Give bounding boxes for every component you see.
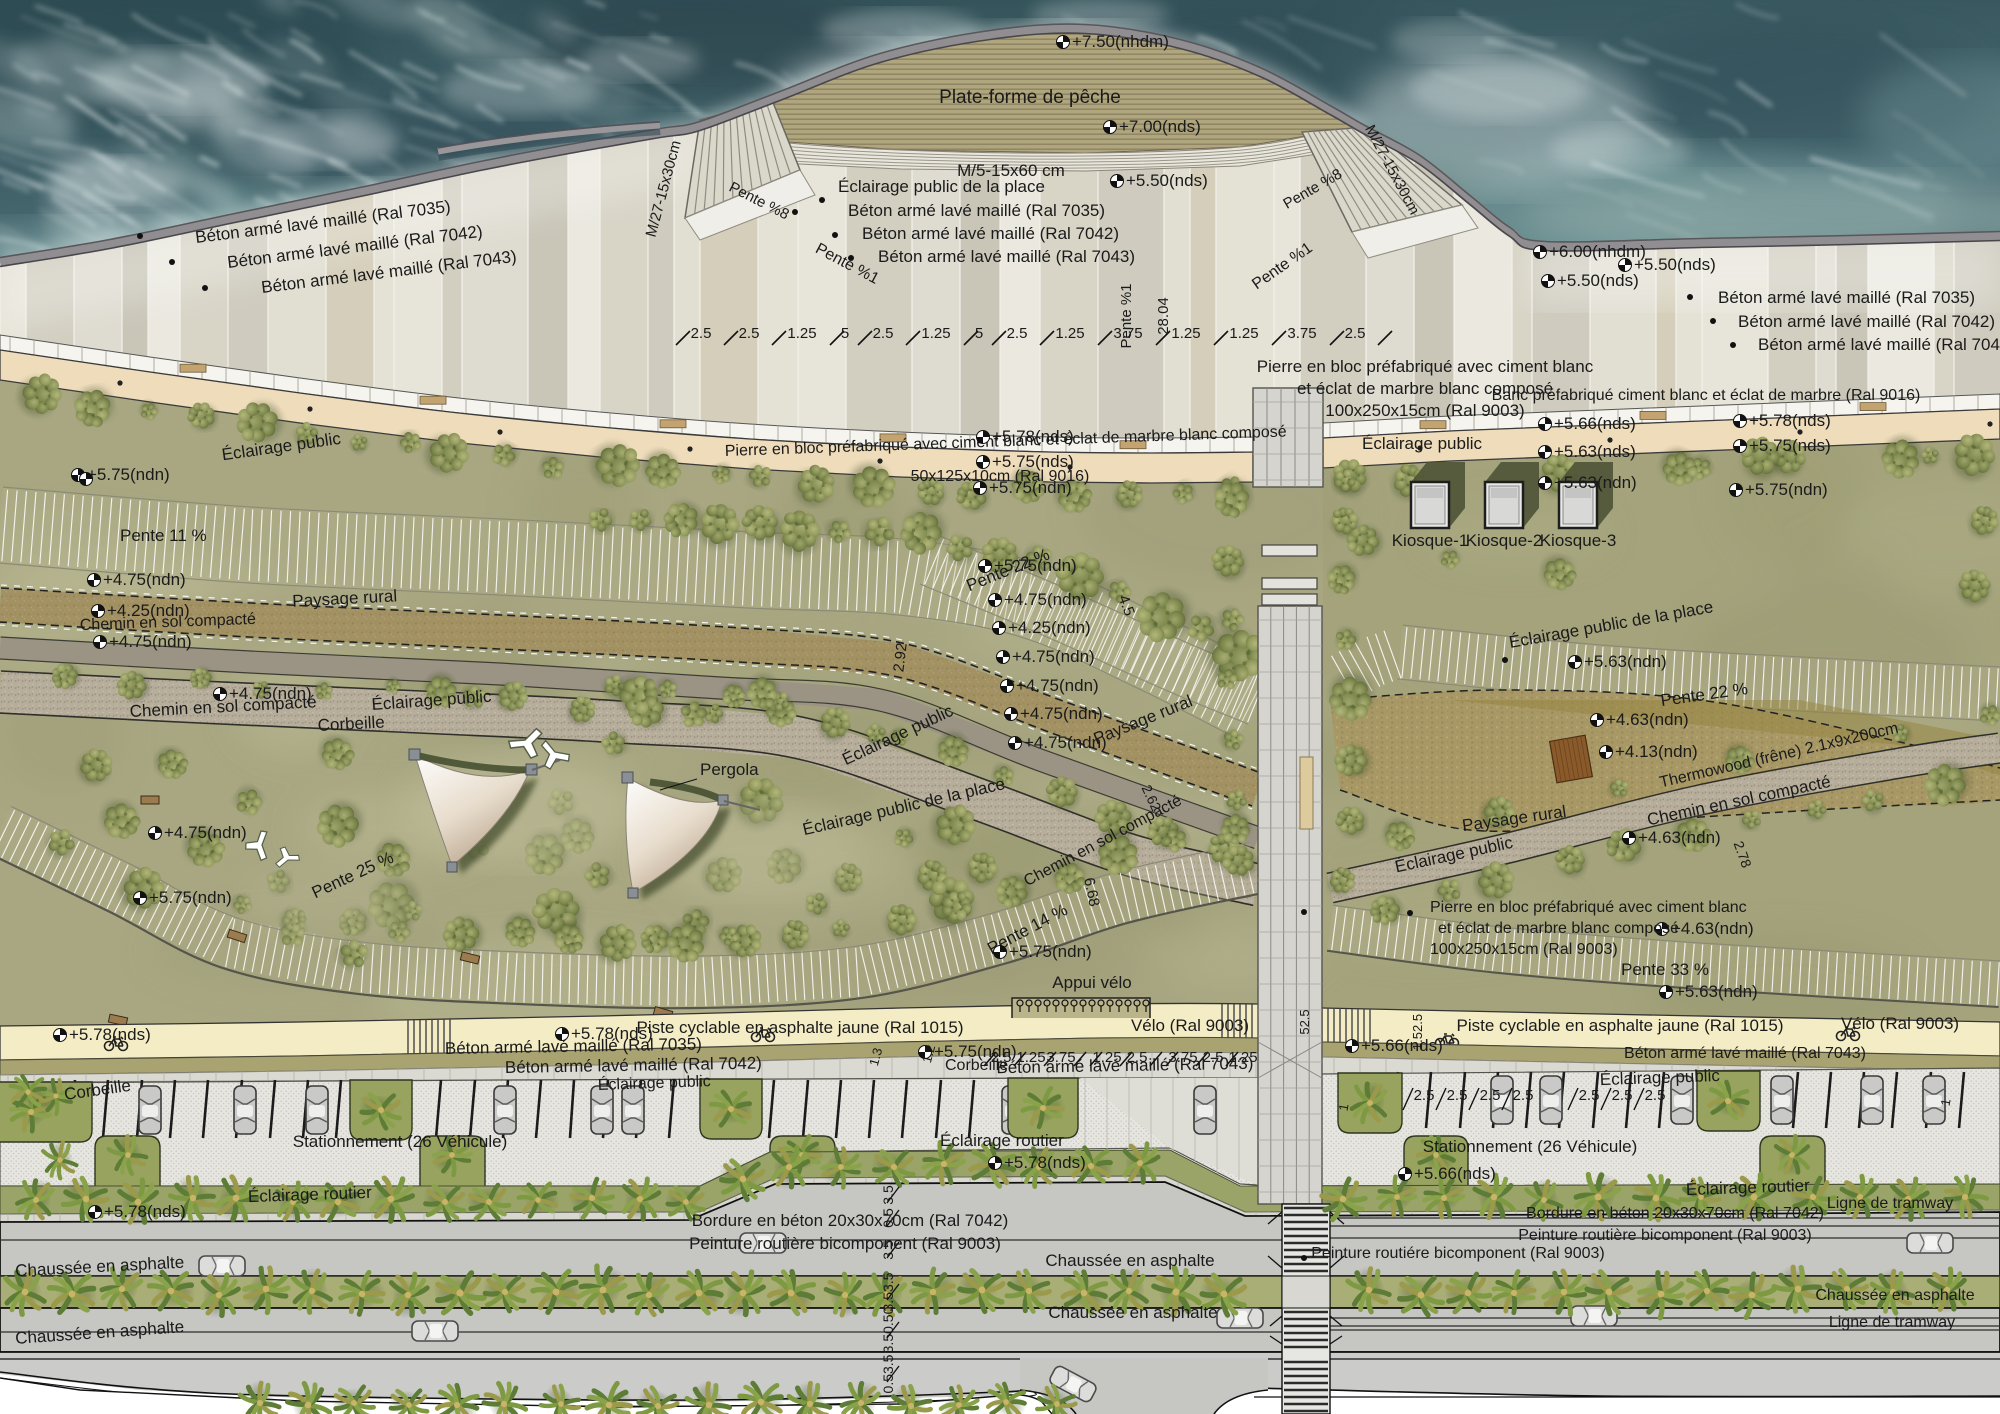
svg-text:Banc préfabriqué ciment blanc: Banc préfabriqué ciment blanc et éclat d… (1492, 387, 1921, 404)
svg-text:2.5: 2.5 (873, 325, 894, 342)
svg-text:1.25: 1.25 (1055, 325, 1084, 342)
svg-text:Éclairage routier: Éclairage routier (940, 1131, 1064, 1150)
svg-text:Peinture routière bicomponent: Peinture routière bicomponent (Ral 9003) (689, 1234, 1001, 1253)
svg-text:Vélo (Ral 9003): Vélo (Ral 9003) (1841, 1014, 1959, 1033)
svg-text:+5.75(nds): +5.75(nds) (992, 452, 1074, 471)
svg-text:52.5: 52.5 (1297, 1009, 1312, 1034)
svg-text:+7.00(nds): +7.00(nds) (1119, 117, 1201, 136)
svg-text:Pente 33 %: Pente 33 % (1621, 960, 1709, 979)
svg-text:+4.13(ndn): +4.13(ndn) (1615, 742, 1698, 761)
svg-text:1.25: 1.25 (787, 325, 816, 342)
svg-text:2.5: 2.5 (1480, 1087, 1501, 1104)
svg-text:Chaussée en asphalte: Chaussée en asphalte (1815, 1287, 1974, 1304)
svg-text:Pente %1: Pente %1 (1118, 283, 1135, 348)
svg-text:Chaussée en asphalte: Chaussée en asphalte (1045, 1251, 1214, 1270)
svg-text:Éclairage public de la place: Éclairage public de la place (838, 177, 1045, 196)
svg-text:Pergola: Pergola (700, 760, 759, 779)
svg-text:2.5: 2.5 (1447, 1087, 1468, 1104)
svg-text:Béton armé lavé maillé (Ral 70: Béton armé lavé maillé (Ral 7043) (1758, 335, 2000, 354)
svg-text:+4.75(ndn): +4.75(ndn) (1012, 647, 1095, 666)
svg-text:Corbeille: Corbeille (317, 713, 385, 735)
svg-text:Pierre en bloc préfabriqué ave: Pierre en bloc préfabriqué avec ciment b… (1257, 357, 1594, 376)
svg-text:+5.75(ndn): +5.75(ndn) (1009, 942, 1092, 961)
svg-text:Pierre en bloc préfabriqué ave: Pierre en bloc préfabriqué avec ciment b… (1430, 899, 1747, 916)
svg-text:1.25: 1.25 (1171, 325, 1200, 342)
svg-text:+5.63(ndn): +5.63(ndn) (1584, 652, 1667, 671)
svg-text:+5.75(ndn): +5.75(ndn) (149, 888, 232, 907)
svg-text:+5.78(nds): +5.78(nds) (1004, 1153, 1086, 1172)
svg-text:5: 5 (975, 325, 983, 342)
svg-text:+5.75(ndn): +5.75(ndn) (87, 465, 170, 484)
svg-text:5: 5 (841, 325, 849, 342)
svg-text:Plate-forme de pêche: Plate-forme de pêche (939, 87, 1121, 108)
svg-text:+4.75(ndn): +4.75(ndn) (1004, 590, 1087, 609)
svg-text:28.04: 28.04 (1155, 297, 1172, 335)
svg-text:+5.50(nds): +5.50(nds) (1634, 255, 1716, 274)
svg-text:100x250x15cm (Ral 9003): 100x250x15cm (Ral 9003) (1430, 941, 1618, 958)
svg-text:2.92: 2.92 (890, 642, 910, 673)
svg-text:Kiosque-3: Kiosque-3 (1540, 531, 1617, 550)
svg-text:+5.63(ndn): +5.63(ndn) (1675, 982, 1758, 1001)
svg-text:1.25: 1.25 (1229, 325, 1258, 342)
svg-text:+4.75(ndn): +4.75(ndn) (103, 570, 186, 589)
svg-text:Kiosque-2: Kiosque-2 (1466, 531, 1543, 550)
svg-text:+5.75(nds): +5.75(nds) (1749, 436, 1831, 455)
svg-text:1.25: 1.25 (921, 325, 950, 342)
svg-text:+4.63(ndn): +4.63(ndn) (1671, 919, 1754, 938)
svg-text:+5.78(nds): +5.78(nds) (104, 1202, 186, 1221)
svg-text:2.5: 2.5 (691, 325, 712, 342)
svg-text:Vélo (Ral 9003): Vélo (Ral 9003) (1131, 1016, 1249, 1035)
svg-text:Béton armé lavé maillé (Ral 70: Béton armé lavé maillé (Ral 7042) (1738, 312, 1995, 331)
svg-text:+5.66(nds): +5.66(nds) (1554, 414, 1636, 433)
svg-text:+5.78(nds): +5.78(nds) (1749, 411, 1831, 430)
svg-text:+5.75(ndn): +5.75(ndn) (989, 478, 1072, 497)
svg-text:+4.75(ndn): +4.75(ndn) (1016, 676, 1099, 695)
svg-text:+5.50(nds): +5.50(nds) (1557, 271, 1639, 290)
svg-text:2.5: 2.5 (1007, 325, 1028, 342)
svg-text:Appui vélo: Appui vélo (1052, 973, 1131, 992)
svg-text:+5.78(nds): +5.78(nds) (992, 427, 1074, 446)
svg-text:+4.63(ndn): +4.63(ndn) (1638, 828, 1721, 847)
svg-text:+4.75(ndn): +4.75(ndn) (164, 823, 247, 842)
svg-text:Béton armé lavé maillé (Ral 70: Béton armé lavé maillé (Ral 7035) (848, 201, 1105, 220)
svg-text:Béton armé lavé maillé (Ral 70: Béton armé lavé maillé (Ral 7035) (1718, 288, 1975, 307)
svg-text:+5.78(nds): +5.78(nds) (69, 1025, 151, 1044)
svg-text:3.75: 3.75 (1287, 325, 1316, 342)
svg-text:+4.25(ndn): +4.25(ndn) (1008, 618, 1091, 637)
svg-text:Pente 11 %: Pente 11 % (120, 526, 207, 545)
svg-text:+5.63(ndn): +5.63(ndn) (1554, 473, 1637, 492)
svg-text:Chaussée en asphalte: Chaussée en asphalte (1048, 1303, 1217, 1322)
svg-text:Corbeille: Corbeille (945, 1057, 1008, 1074)
svg-text:Stationnement (26 Véhicule): Stationnement (26 Véhicule) (293, 1132, 508, 1151)
svg-text:Stationnement (26 Véhicule): Stationnement (26 Véhicule) (1423, 1137, 1638, 1156)
svg-text:2.5: 2.5 (1414, 1087, 1435, 1104)
svg-text:2.5: 2.5 (1345, 325, 1366, 342)
svg-text:+5.50(nds): +5.50(nds) (1126, 171, 1208, 190)
svg-text:Béton armé lavé maillé (Ral 70: Béton armé lavé maillé (Ral 7042) (862, 224, 1119, 243)
svg-text:+4.75(ndn): +4.75(ndn) (109, 632, 192, 651)
svg-text:Éclairage public: Éclairage public (1362, 434, 1483, 453)
svg-text:+5.66(nds): +5.66(nds) (1414, 1164, 1496, 1183)
svg-text:+4.63(ndn): +4.63(ndn) (1606, 710, 1689, 729)
svg-text:Ligne de tramway: Ligne de tramway (1829, 1314, 1955, 1331)
svg-text:Bordure en béton 20x30x70cm (R: Bordure en béton 20x30x70cm (Ral 7042) (1526, 1205, 1824, 1222)
svg-text:et éclat de marbre blanc compo: et éclat de marbre blanc composé (1438, 920, 1679, 937)
svg-text:Peinture routière bicomponent: Peinture routière bicomponent (Ral 9003) (1518, 1227, 1812, 1244)
svg-text:+7.50(nhdm): +7.50(nhdm) (1072, 32, 1169, 51)
svg-text:Peinture routiére bicomponent: Peinture routiére bicomponent (Ral 9003) (1311, 1245, 1605, 1262)
svg-text:2.5: 2.5 (739, 325, 760, 342)
svg-text:Piste cyclable en asphalte jau: Piste cyclable en asphalte jaune (Ral 10… (1457, 1016, 1784, 1035)
svg-text:+5.75(ndn): +5.75(ndn) (1745, 480, 1828, 499)
svg-text:+5.63(nds): +5.63(nds) (1554, 442, 1636, 461)
svg-text:Béton armé lavé maillé (Ral 70: Béton armé lavé maillé (Ral 7043) (1624, 1045, 1866, 1062)
svg-text:2.5: 2.5 (1513, 1087, 1534, 1104)
svg-text:Béton armé lavé maillé (Ral 70: Béton armé lavé maillé (Ral 7043) (878, 247, 1135, 266)
svg-text:+6.00(nhdm): +6.00(nhdm) (1549, 242, 1646, 261)
svg-text:2.5: 2.5 (1612, 1087, 1633, 1104)
svg-text:+5.66(nds): +5.66(nds) (1361, 1036, 1443, 1055)
svg-text:Bordure en béton 20x30x70cm (R: Bordure en béton 20x30x70cm (Ral 7042) (692, 1211, 1009, 1230)
svg-text:Ligne de tramway: Ligne de tramway (1827, 1195, 1953, 1212)
svg-text:2.5: 2.5 (1645, 1087, 1666, 1104)
svg-text:Kiosque-1: Kiosque-1 (1392, 531, 1469, 550)
svg-text:2.5: 2.5 (1579, 1087, 1600, 1104)
svg-text:+4.75(ndn): +4.75(ndn) (1020, 704, 1103, 723)
